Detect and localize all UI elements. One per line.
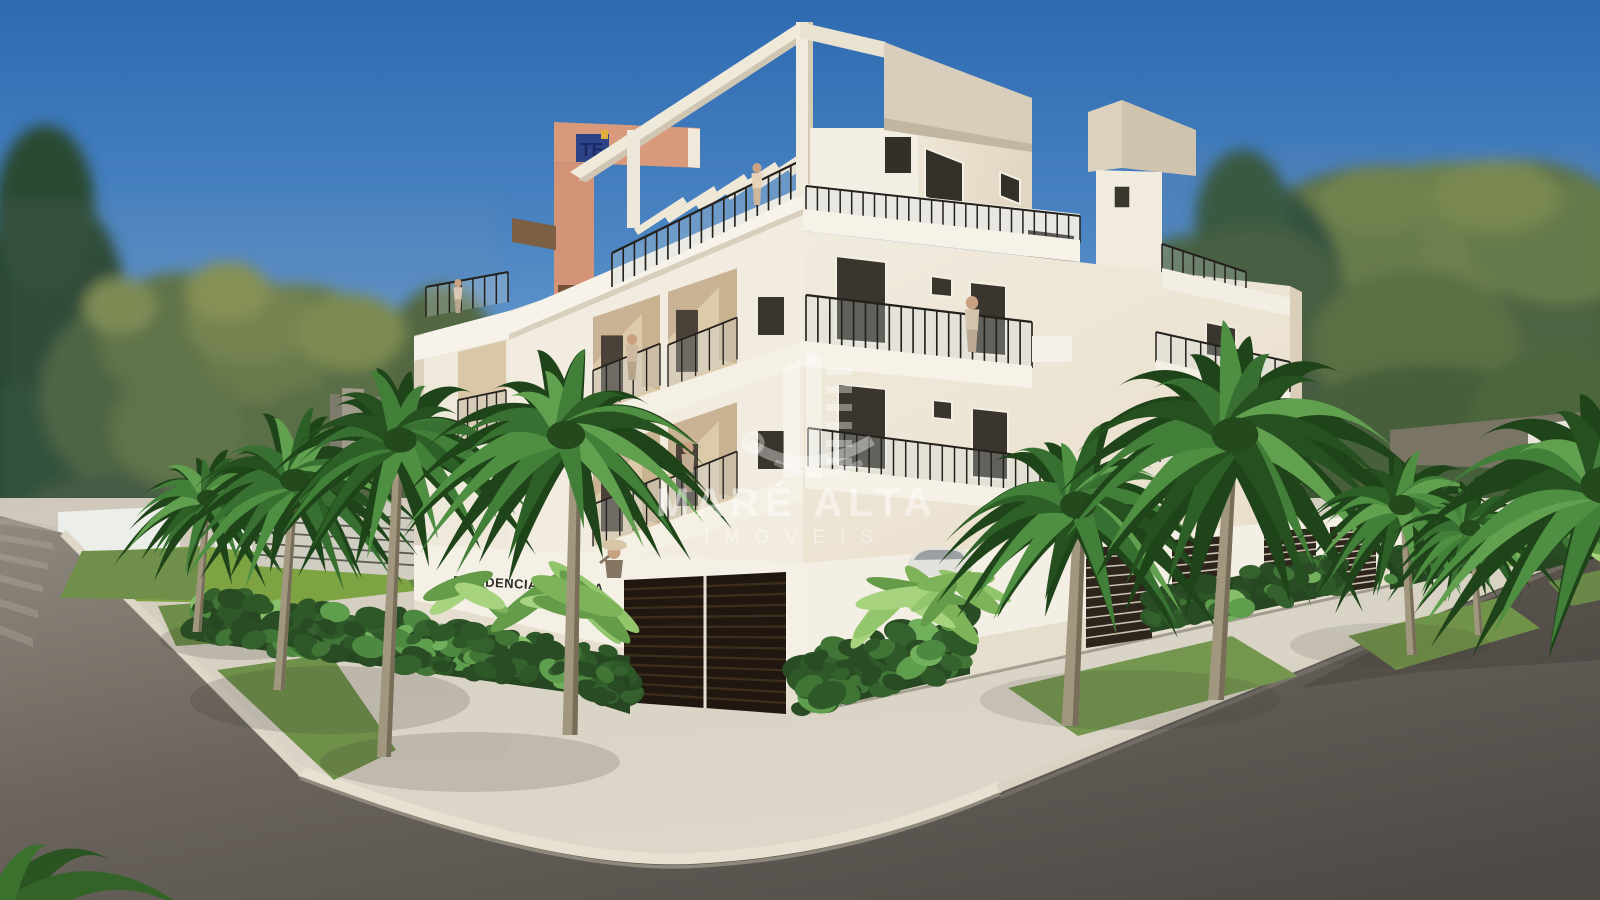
svg-text:IMÓVEIS: IMÓVEIS xyxy=(704,526,888,548)
svg-text:MARÉ ALTA: MARÉ ALTA xyxy=(656,480,938,525)
